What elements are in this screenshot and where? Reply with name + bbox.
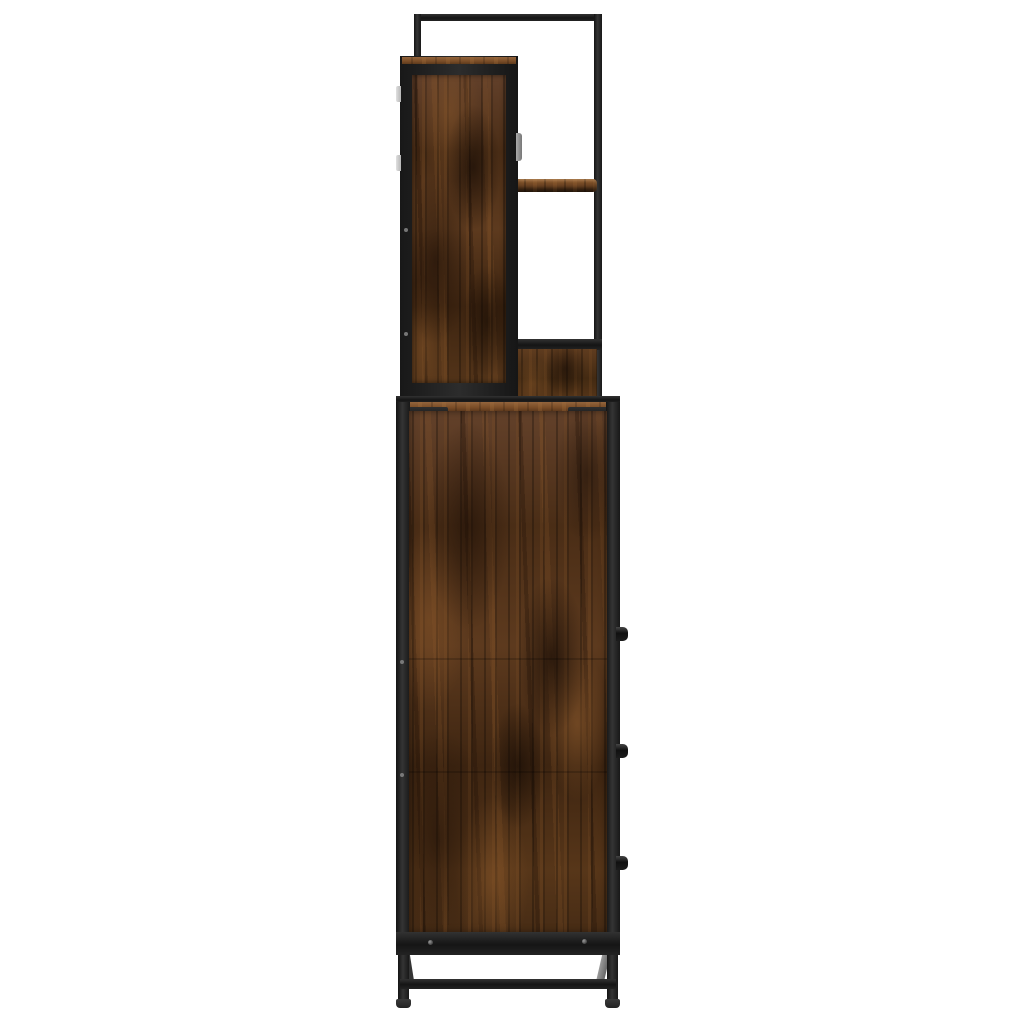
- wall-cabinet-hinge-top: [396, 86, 401, 102]
- drawer-knob-top: [616, 627, 628, 641]
- leg-cross-brace: [400, 979, 616, 989]
- top-frame-left-post: [414, 14, 421, 58]
- rivet: [428, 940, 433, 945]
- front-leg-left: [398, 955, 409, 1001]
- base-cabinet: [396, 396, 620, 955]
- drawer-knob-middle: [616, 744, 628, 758]
- rivet: [582, 939, 587, 944]
- base-cabinet-left-post: [396, 402, 410, 932]
- lower-open-shelf-panel: [517, 349, 597, 398]
- frame-screw: [404, 332, 408, 336]
- top-frame-bar: [414, 14, 602, 21]
- base-cabinet-right-post: [606, 402, 620, 932]
- frame-screw: [400, 773, 404, 777]
- upper-open-shelf: [517, 179, 597, 192]
- wall-cabinet-side-panel: [412, 75, 506, 383]
- front-leg-right: [607, 955, 618, 1001]
- panel-seam: [409, 658, 607, 660]
- base-cabinet-side-panel: [409, 411, 607, 933]
- panel-seam: [409, 771, 607, 773]
- frame-screw: [404, 228, 408, 232]
- wall-cabinet-hinge-bottom: [396, 155, 401, 171]
- leg-foot-right: [605, 999, 620, 1008]
- drawer-knob-bottom: [616, 856, 628, 870]
- wall-cabinet-door-handle: [516, 133, 522, 161]
- wall-cabinet-top-surface: [402, 57, 516, 64]
- product-photo: [0, 0, 1024, 1024]
- wall-cabinet: [400, 56, 518, 397]
- frame-screw: [400, 660, 404, 664]
- leg-foot-left: [396, 999, 411, 1008]
- base-cabinet-bottom-rail: [396, 932, 620, 955]
